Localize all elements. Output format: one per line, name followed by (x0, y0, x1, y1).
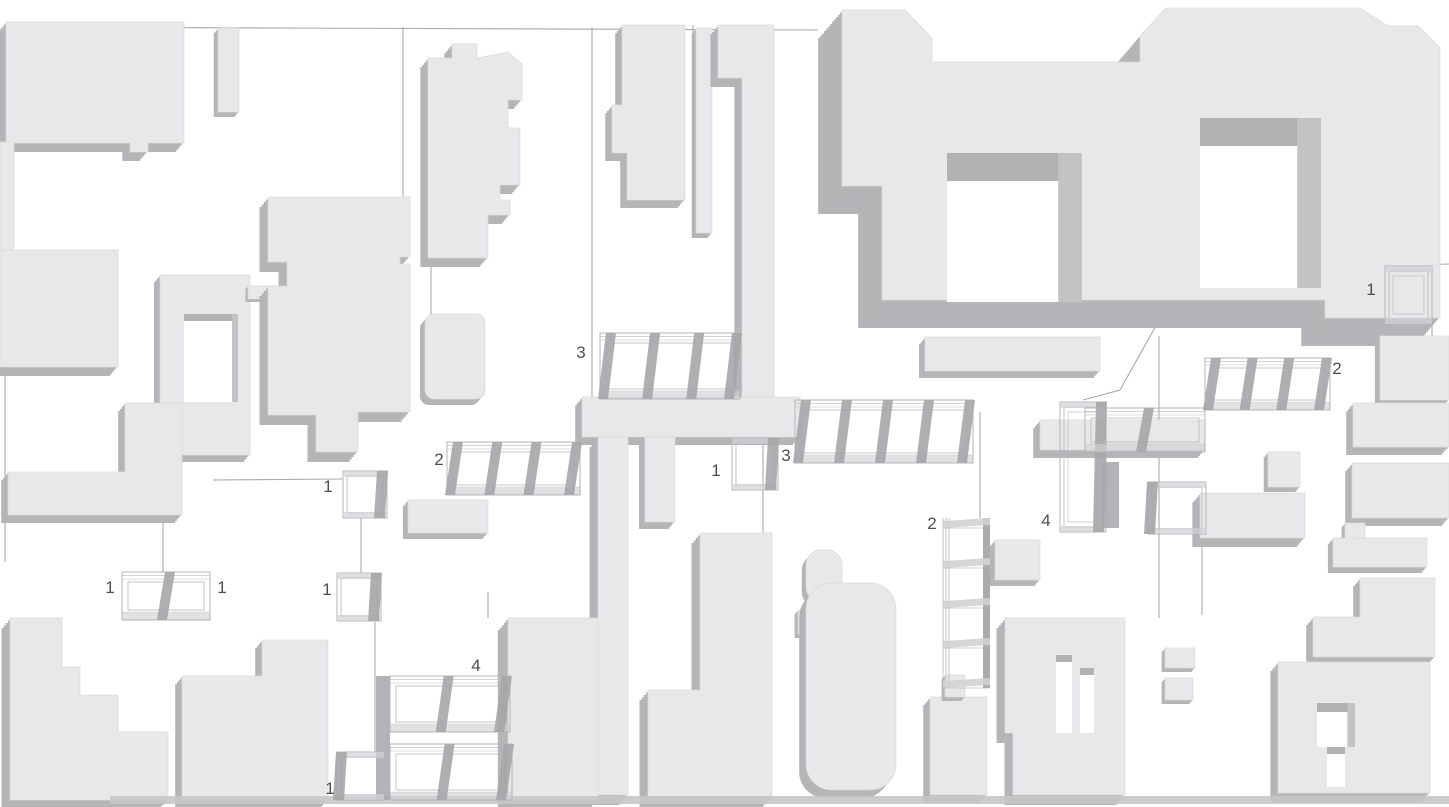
building-roof (8, 403, 182, 515)
wire-face (390, 724, 510, 732)
courtyard-east-wall (1347, 703, 1355, 747)
building-roof (182, 640, 328, 800)
wire-face (333, 752, 347, 800)
wire-1-a (343, 471, 388, 518)
courtyard-east-wall (232, 314, 238, 402)
building-roof (0, 142, 14, 257)
building-block-bottom-right-u (1270, 662, 1430, 802)
wire-face (765, 438, 779, 490)
unit-label: 1 (711, 461, 720, 480)
wire-face (368, 573, 382, 621)
building-roof (582, 397, 800, 437)
wire-face (1103, 462, 1119, 528)
building-bar-top-left (214, 28, 239, 117)
wire-face (376, 676, 390, 800)
building-tower-mid-long (710, 25, 774, 406)
wire-2-right (1203, 358, 1332, 410)
building-roof (508, 618, 598, 800)
building-block-below-ladder (923, 697, 987, 803)
wire-face (957, 400, 975, 463)
building-block-left-l (1, 403, 182, 523)
building-roof (0, 250, 118, 367)
building-block-left-mid (0, 250, 118, 376)
building-block-l-bottom-mid (640, 533, 773, 807)
courtyard (184, 314, 238, 402)
wire-face (374, 471, 388, 518)
wire-face (943, 558, 990, 568)
building-roof (1333, 538, 1427, 567)
building-roof (648, 533, 772, 797)
unit-label: 4 (1041, 511, 1050, 530)
building-block-right-step (1328, 538, 1427, 573)
building-block-tall-bottom (498, 618, 598, 807)
courtyard-east-wall (1058, 153, 1082, 302)
wire-outline (453, 452, 574, 485)
building-roof (1352, 463, 1449, 518)
wire-face (875, 400, 893, 463)
unit-label: 2 (1332, 359, 1341, 378)
building-roof (1353, 403, 1449, 447)
courtyard-north-wall (184, 314, 238, 321)
building-bar-mid-narrow (692, 28, 712, 238)
unit-label: 1 (105, 578, 114, 597)
building-bar-vertical-b (639, 437, 675, 529)
building-roof (10, 618, 168, 800)
building-tower-ornate (420, 44, 522, 267)
unit-label: 4 (471, 656, 480, 675)
building-roof (930, 697, 987, 795)
unit-label: 1 (323, 477, 332, 496)
wire-4-cluster-left (376, 676, 514, 800)
wire-outline (341, 757, 380, 795)
building-block-mid-stepped (605, 25, 685, 208)
building-roof (925, 337, 1100, 371)
building-block-right-b (1345, 463, 1449, 526)
wire-face (834, 400, 852, 463)
wire-face (447, 487, 580, 495)
wire-2-ladder (943, 518, 990, 688)
building-roof (598, 437, 628, 795)
building-roof (1268, 452, 1300, 487)
building-complex-top-right (818, 8, 1440, 346)
unit-label: 1 (325, 779, 334, 798)
building-block-rounded-small (420, 314, 485, 405)
building-roof (1380, 336, 1449, 400)
roof-slot-wall (1080, 668, 1094, 675)
building-roof (1200, 493, 1305, 538)
building-roof (218, 28, 239, 112)
unit-label: 3 (781, 446, 790, 465)
unit-label: 1 (322, 580, 331, 599)
wire-1-c (337, 573, 382, 621)
building-roof (428, 44, 522, 258)
building-block-right-a (1346, 403, 1449, 455)
wire-face (1205, 402, 1330, 410)
wire-face (437, 744, 455, 800)
building-roof (1165, 648, 1195, 668)
building-block-small-b (1162, 678, 1193, 704)
building-roof (645, 437, 675, 522)
building-block-small-mid (403, 500, 488, 539)
wire-face (436, 676, 454, 732)
unit-label: 1 (217, 578, 226, 597)
wire-outline (1211, 368, 1324, 400)
building-block-near-ladder (990, 540, 1040, 586)
ground-strip (110, 796, 1449, 804)
scene-svg: 32113111412421 (0, 0, 1449, 807)
ground-strip (110, 796, 1449, 804)
building-block-bottom-e (997, 618, 1126, 805)
building-slab-top-left (0, 22, 184, 161)
courtyard-east-wall (1297, 118, 1321, 288)
unit-label: 3 (576, 343, 585, 362)
building-roof (408, 500, 488, 533)
wire-face (1144, 482, 1158, 534)
wire-face (600, 391, 740, 399)
wire-face (916, 400, 934, 463)
wire-face (943, 638, 990, 648)
building-roof (842, 8, 1440, 318)
unit-label: 2 (434, 450, 443, 469)
wire-3-mid (793, 400, 975, 463)
wire-outline (606, 343, 734, 389)
building-block-right-edge-upper (1375, 336, 1449, 406)
building-block-right-l (1306, 578, 1435, 665)
building-roof (806, 583, 896, 790)
roof-slot-wall (1056, 655, 1072, 662)
roof-slot-wall (1327, 747, 1345, 754)
building-roof (1313, 578, 1435, 657)
building-block-central-large (260, 197, 411, 462)
wire-face (943, 598, 990, 608)
building-strip-far-left (0, 142, 14, 261)
wire-face (390, 792, 512, 800)
building-block-mid-right (1192, 493, 1305, 547)
roof-slot (1080, 668, 1094, 733)
wire-face (1385, 318, 1432, 324)
building-block-small-a (1162, 648, 1195, 672)
building-block-bottom-left-b (175, 640, 328, 807)
wire-1-b (732, 438, 779, 490)
building-block-right-mid (1264, 452, 1300, 492)
wire-face (1148, 528, 1206, 534)
unit-label: 2 (927, 514, 936, 533)
roof-slot (1056, 655, 1072, 733)
wire-face (1385, 266, 1432, 272)
building-block-bottom-left-giant (2, 618, 169, 807)
building-slab-below-complex (919, 337, 1100, 378)
building-roof (995, 540, 1040, 580)
building-roof (696, 28, 712, 233)
axonometric-site-diagram: 32113111412421 (0, 0, 1449, 807)
building-tower-bottle (799, 583, 896, 798)
building-roof (6, 22, 184, 152)
building-roof (425, 314, 485, 399)
wire-2-left (445, 442, 582, 495)
wire-1-pair (122, 572, 210, 620)
building-roof (1165, 678, 1193, 700)
wire-3-left (598, 333, 742, 399)
unit-label: 1 (1366, 280, 1375, 299)
wire-face (943, 518, 990, 528)
